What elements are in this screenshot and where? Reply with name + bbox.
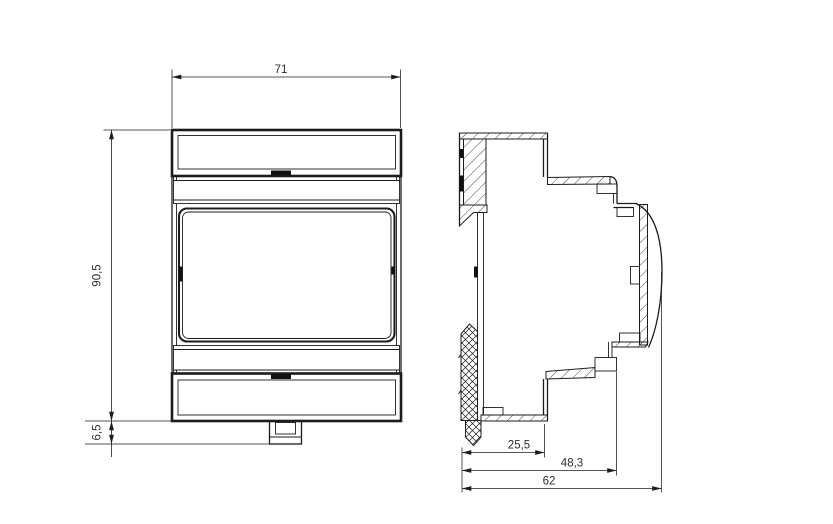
side-front-wall bbox=[640, 205, 648, 346]
technical-drawing: 71 90,5 6,5 25,5 48,3 bbox=[0, 0, 833, 524]
front-top-cover-latch-notch bbox=[271, 171, 291, 176]
side-front-latch-button bbox=[631, 267, 640, 285]
side-top-wall bbox=[460, 133, 548, 139]
front-left-slot-mark bbox=[179, 267, 183, 282]
side-bottom-wall bbox=[481, 415, 548, 421]
side-bottom-ledge bbox=[483, 408, 503, 416]
front-bottom-cover-inner bbox=[178, 380, 396, 415]
side-front-step bbox=[617, 208, 634, 217]
side-front-lower-step bbox=[620, 333, 641, 342]
drawing-canvas: 71 90,5 6,5 25,5 48,3 bbox=[0, 0, 833, 524]
dim-label-side-depth-mid: 48,3 bbox=[561, 458, 583, 470]
side-bottom-front-wall bbox=[546, 368, 595, 380]
side-din-hook bbox=[460, 205, 488, 226]
front-display-panel-inner bbox=[183, 212, 392, 339]
side-lower-step bbox=[595, 358, 617, 372]
side-back-mark-1 bbox=[460, 149, 464, 158]
side-front-top-step bbox=[544, 133, 548, 178]
front-bottom-terminal-cover bbox=[172, 374, 401, 422]
front-display-panel bbox=[179, 209, 395, 342]
side-din-clip-spring bbox=[461, 324, 478, 421]
dim-clip-offset: 6,5 bbox=[85, 421, 270, 457]
side-din-channel bbox=[478, 213, 484, 415]
dim-label-front-width: 71 bbox=[275, 64, 288, 76]
dim-side-depth-mid: 48,3 bbox=[462, 372, 617, 476]
side-back-wall bbox=[464, 139, 487, 205]
side-back-mark-2 bbox=[460, 176, 464, 192]
front-din-clip-tab bbox=[270, 421, 302, 444]
side-upper-shelf bbox=[548, 177, 611, 185]
side-upper-latch bbox=[597, 184, 617, 194]
side-din-clip-tail bbox=[466, 421, 482, 446]
front-view bbox=[172, 130, 401, 444]
dim-label-side-depth-total: 62 bbox=[543, 476, 556, 488]
dim-label-clip-offset: 6,5 bbox=[92, 425, 104, 441]
side-channel-mark bbox=[474, 267, 478, 278]
front-bottom-cover-latch-notch bbox=[271, 374, 291, 379]
dim-label-side-depth-inner: 25,5 bbox=[508, 440, 530, 452]
side-view bbox=[459, 133, 663, 446]
dim-front-height: 90,5 bbox=[85, 130, 172, 421]
dim-front-width: 71 bbox=[172, 64, 401, 128]
dim-label-front-height: 90,5 bbox=[92, 264, 104, 286]
front-din-clip-tab-inner bbox=[276, 423, 296, 435]
front-right-slot-mark bbox=[392, 267, 395, 275]
front-top-cover-inner bbox=[178, 136, 396, 170]
side-lower-shelf bbox=[612, 342, 648, 347]
